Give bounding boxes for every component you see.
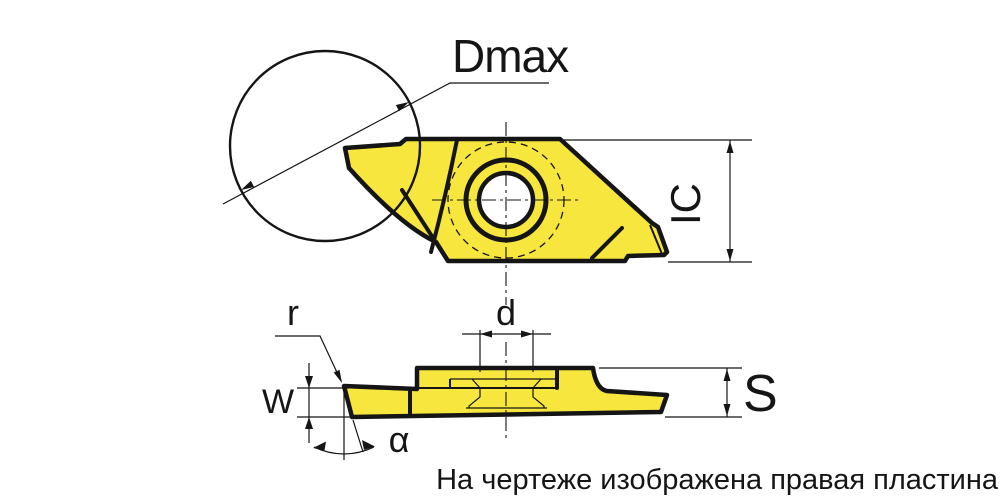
alpha-face-extension (353, 420, 363, 452)
s-arrow-bottom (724, 404, 731, 416)
w-arrow-top (305, 376, 313, 388)
alpha-arrow-left (313, 442, 326, 451)
cutting-insert-drawing: Dmax IC d (0, 0, 1000, 500)
w-arrow-bottom (305, 417, 313, 429)
label-s: S (743, 365, 778, 423)
r-leader-line (275, 336, 341, 381)
d-arrow-left (480, 331, 492, 338)
r-arrow (334, 370, 342, 383)
label-w: W (262, 383, 294, 421)
d-arrow-right (521, 331, 533, 338)
top-view: Dmax IC (223, 30, 752, 305)
technical-drawing-page: Dmax IC d (0, 0, 1000, 500)
alpha-arrow-right (362, 440, 375, 450)
label-dmax: Dmax (452, 30, 569, 82)
label-r: r (287, 292, 299, 333)
label-alpha: α (389, 419, 410, 460)
label-d: d (496, 292, 516, 333)
dmax-arrow-upper (396, 102, 409, 111)
ic-arrow-top (727, 141, 734, 153)
caption-right-hand-insert: На чертеже изображена правая пластина (436, 464, 999, 496)
label-ic: IC (662, 183, 709, 225)
side-view: d r W α (262, 292, 778, 460)
ic-arrow-bottom (727, 249, 734, 261)
s-arrow-top (724, 369, 731, 381)
